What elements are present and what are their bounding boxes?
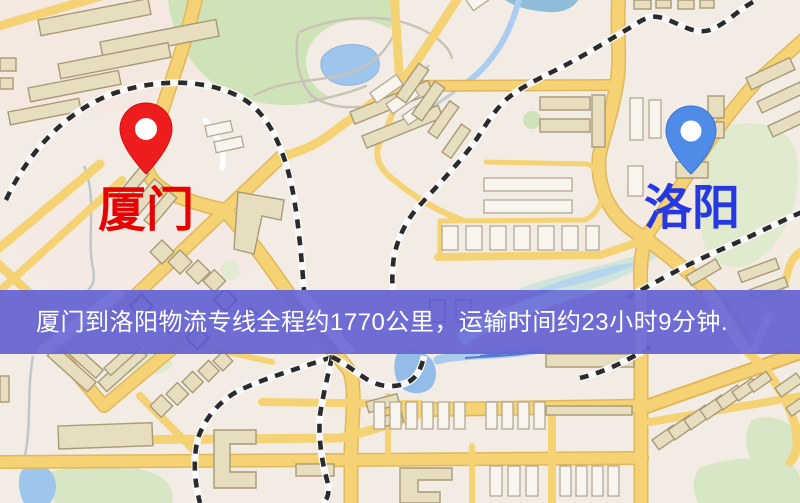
- luoyang-label: 洛阳: [644, 182, 740, 235]
- map-canvas: 厦门到洛阳物流专线全程约1770公里，运输时间约23小时9分钟. 厦门 洛阳: [0, 0, 800, 503]
- map-image: 厦门到洛阳物流专线全程约1770公里，运输时间约23小时9分钟. 厦门 洛阳: [0, 0, 800, 503]
- xiamen-pin-hole: [135, 118, 157, 140]
- caption-text: 厦门到洛阳物流专线全程约1770公里，运输时间约23小时9分钟.: [36, 309, 728, 336]
- xiamen-label: 厦门: [98, 184, 194, 237]
- luoyang-pin-hole: [681, 121, 702, 142]
